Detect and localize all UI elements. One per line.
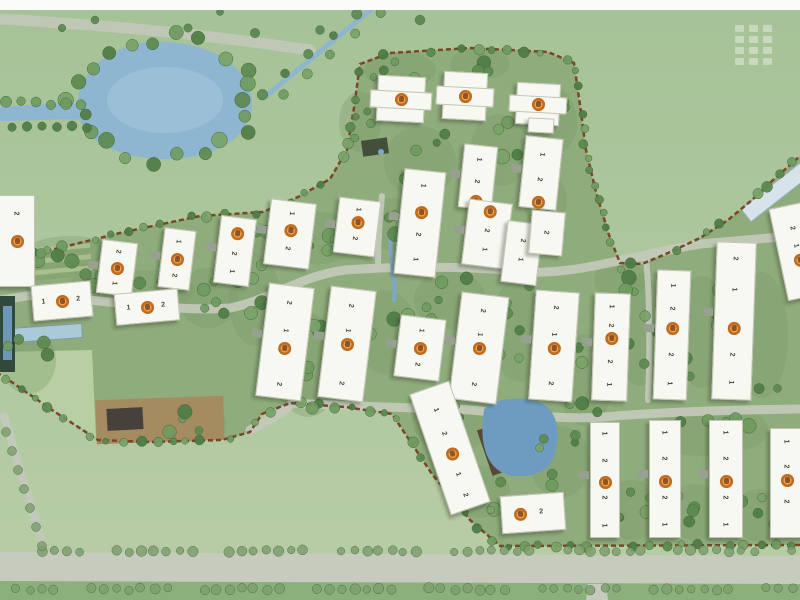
tree bbox=[211, 585, 221, 595]
south-road bbox=[0, 552, 800, 584]
tree bbox=[463, 547, 472, 556]
tree bbox=[370, 74, 377, 81]
unit-label: 2 bbox=[607, 323, 614, 327]
tree bbox=[487, 537, 496, 546]
parking-pad bbox=[251, 329, 262, 338]
unit-label: 1 bbox=[228, 269, 235, 274]
tree bbox=[451, 586, 460, 595]
tree bbox=[301, 189, 308, 196]
tree bbox=[351, 29, 360, 38]
tree bbox=[751, 548, 759, 556]
unit-label: 1 bbox=[721, 430, 728, 434]
tree bbox=[551, 542, 561, 552]
tree bbox=[537, 50, 543, 56]
tree bbox=[355, 68, 364, 77]
tree bbox=[288, 546, 295, 553]
tree bbox=[170, 147, 183, 160]
tree bbox=[125, 586, 133, 594]
tree bbox=[440, 129, 450, 139]
unit-label: 2 bbox=[414, 232, 421, 237]
tree bbox=[352, 113, 359, 120]
tree bbox=[789, 584, 798, 593]
tree bbox=[31, 97, 41, 107]
tree bbox=[164, 584, 172, 592]
tree bbox=[600, 209, 607, 216]
tree bbox=[788, 547, 796, 555]
tree bbox=[112, 546, 122, 556]
tree bbox=[570, 430, 580, 440]
tree bbox=[22, 122, 32, 132]
tree bbox=[579, 140, 588, 149]
tree bbox=[476, 546, 484, 554]
tree bbox=[640, 311, 651, 322]
unit-label: 1 bbox=[600, 432, 607, 436]
unit-label: 1 bbox=[288, 211, 295, 216]
tree bbox=[487, 506, 495, 514]
tree bbox=[787, 157, 796, 166]
unit-label: 1 bbox=[174, 239, 181, 244]
unit-label: 2 bbox=[536, 177, 543, 182]
tree bbox=[279, 90, 289, 100]
tree bbox=[225, 585, 235, 595]
tree bbox=[317, 181, 324, 188]
tree bbox=[324, 584, 334, 594]
unit-label: 2 bbox=[782, 500, 789, 504]
tree bbox=[472, 524, 482, 534]
tree bbox=[758, 541, 766, 549]
building: 21 bbox=[96, 239, 138, 297]
unit-label: 2 bbox=[788, 226, 796, 231]
tree bbox=[363, 586, 371, 594]
tree bbox=[435, 296, 443, 304]
tree bbox=[574, 586, 582, 594]
tree bbox=[639, 359, 649, 369]
tree bbox=[753, 188, 763, 198]
parking-pad bbox=[256, 225, 267, 234]
building-number-marker bbox=[140, 300, 154, 314]
tree bbox=[312, 584, 321, 593]
tree bbox=[62, 547, 71, 556]
building-number-marker bbox=[110, 261, 124, 275]
tree bbox=[547, 469, 557, 479]
unit-label: 1 bbox=[475, 157, 482, 162]
building-number-marker bbox=[727, 322, 740, 335]
tree bbox=[363, 546, 373, 556]
building-number-marker bbox=[472, 341, 486, 355]
tree bbox=[576, 356, 588, 368]
unit-label: 2 bbox=[283, 246, 290, 251]
unit-label: 1 bbox=[669, 284, 676, 288]
tree bbox=[381, 409, 388, 416]
watermark-glyph bbox=[735, 36, 744, 43]
tree bbox=[281, 69, 290, 78]
tree bbox=[367, 119, 376, 128]
tree bbox=[391, 58, 399, 66]
tree bbox=[67, 121, 77, 131]
tree bbox=[352, 9, 362, 19]
tree bbox=[273, 546, 284, 557]
tree bbox=[302, 69, 312, 79]
tree bbox=[263, 585, 273, 595]
tree bbox=[436, 584, 445, 593]
tree bbox=[162, 547, 171, 556]
tree bbox=[32, 395, 38, 401]
tree bbox=[387, 585, 396, 594]
building: 12 bbox=[333, 197, 382, 258]
parking-pad bbox=[511, 164, 522, 173]
parking-pad bbox=[313, 331, 324, 340]
tree bbox=[191, 31, 205, 45]
unit-label: 2 bbox=[552, 306, 559, 310]
tree bbox=[496, 477, 506, 487]
tree bbox=[329, 32, 337, 40]
tree bbox=[37, 336, 50, 349]
tree bbox=[500, 585, 509, 594]
unit-label: 2 bbox=[285, 300, 292, 305]
tree bbox=[1, 375, 9, 383]
west-water-garden-pool bbox=[3, 306, 12, 360]
unit-label: 2 bbox=[732, 256, 739, 260]
watermark-glyph bbox=[749, 47, 758, 54]
tree bbox=[306, 402, 319, 415]
tree bbox=[595, 195, 603, 203]
building: 212 bbox=[528, 290, 580, 403]
tree bbox=[673, 545, 682, 554]
unit-label: 2 bbox=[161, 301, 166, 308]
unit-label: 1 bbox=[666, 381, 673, 385]
tree bbox=[350, 584, 361, 595]
tree bbox=[329, 403, 339, 413]
tree bbox=[687, 505, 699, 517]
tree bbox=[250, 28, 259, 37]
unit-label: 1 bbox=[282, 328, 289, 333]
unit-label: 1 bbox=[432, 407, 440, 413]
unit-label: 2 bbox=[12, 212, 19, 216]
tree bbox=[103, 438, 109, 444]
watermark-glyph bbox=[749, 58, 758, 65]
tree bbox=[351, 546, 359, 554]
tree bbox=[399, 548, 407, 556]
tree bbox=[663, 542, 672, 551]
tree bbox=[416, 454, 424, 462]
tree bbox=[536, 444, 544, 452]
tree bbox=[188, 212, 196, 220]
tree bbox=[546, 479, 558, 491]
unit-label: 1 bbox=[344, 328, 351, 333]
tree bbox=[201, 212, 212, 223]
building-number-marker bbox=[350, 215, 364, 229]
tree bbox=[672, 246, 681, 255]
watermark-glyph bbox=[735, 25, 744, 32]
tree bbox=[427, 48, 436, 57]
building-number-marker bbox=[531, 97, 545, 111]
tree bbox=[235, 92, 250, 107]
building bbox=[442, 71, 488, 121]
unit-label: 2 bbox=[519, 238, 526, 243]
tree bbox=[626, 488, 635, 497]
tree bbox=[237, 546, 247, 556]
building-number-marker bbox=[414, 206, 428, 220]
tree bbox=[98, 132, 114, 148]
building: 1221 bbox=[591, 292, 631, 401]
parking-pad bbox=[579, 471, 589, 479]
tree bbox=[147, 157, 161, 171]
building: 2 bbox=[0, 195, 35, 287]
unit-label: 2 bbox=[230, 251, 237, 256]
building: 1221 bbox=[709, 420, 743, 538]
tree bbox=[71, 74, 86, 89]
unit-label: 2 bbox=[170, 273, 177, 278]
building-number-marker bbox=[781, 474, 794, 487]
tree bbox=[712, 545, 721, 554]
tree bbox=[27, 586, 35, 594]
tree bbox=[194, 435, 204, 445]
unit-label: 1 bbox=[41, 298, 46, 305]
tree bbox=[563, 56, 572, 65]
unit-label: 1 bbox=[538, 152, 545, 157]
top-margin bbox=[0, 0, 800, 10]
tree bbox=[257, 89, 268, 100]
tree bbox=[338, 585, 346, 593]
tree bbox=[662, 584, 673, 595]
tree bbox=[244, 306, 257, 319]
parking-pad bbox=[88, 260, 99, 269]
unit-label: 2 bbox=[76, 295, 81, 302]
tree bbox=[337, 547, 345, 555]
tree bbox=[80, 109, 91, 120]
tree bbox=[146, 38, 158, 50]
tree bbox=[574, 545, 584, 555]
tree bbox=[612, 548, 620, 556]
tree bbox=[774, 584, 783, 593]
tree bbox=[701, 585, 709, 593]
tree bbox=[249, 547, 257, 555]
building-number-marker bbox=[277, 341, 291, 355]
unit-label: 2 bbox=[479, 308, 486, 313]
tree bbox=[626, 548, 634, 556]
building-number-marker bbox=[170, 252, 184, 266]
building: 122 bbox=[770, 428, 800, 538]
tree bbox=[178, 404, 193, 419]
tree bbox=[86, 433, 94, 441]
unit-label: 1 bbox=[608, 304, 615, 308]
unit-label: 2 bbox=[440, 431, 448, 437]
tree bbox=[649, 585, 658, 594]
unit-label: 1 bbox=[354, 207, 361, 212]
unit-label: 1 bbox=[476, 332, 483, 337]
tree bbox=[42, 402, 52, 412]
tree bbox=[379, 66, 388, 75]
tree bbox=[99, 584, 108, 593]
tree bbox=[512, 149, 523, 160]
building: 1221 bbox=[649, 420, 681, 538]
tree bbox=[488, 46, 495, 53]
tree bbox=[776, 170, 785, 179]
tree bbox=[373, 546, 382, 555]
tree bbox=[737, 547, 744, 554]
tree bbox=[458, 45, 466, 53]
tree bbox=[373, 583, 384, 594]
building-number-marker bbox=[340, 337, 354, 351]
tree bbox=[169, 25, 183, 39]
tree bbox=[60, 98, 72, 110]
parking-pad bbox=[388, 211, 399, 220]
tree bbox=[754, 383, 764, 393]
tree bbox=[325, 50, 334, 59]
tree bbox=[125, 227, 134, 236]
tree bbox=[200, 586, 209, 595]
tree bbox=[685, 545, 696, 556]
tree bbox=[503, 45, 512, 54]
parking-pad bbox=[638, 470, 648, 478]
tree bbox=[156, 220, 164, 228]
unit-label: 2 bbox=[660, 457, 667, 461]
tree bbox=[564, 546, 572, 554]
unit-label: 1 bbox=[605, 383, 612, 387]
unit-label: 1 bbox=[660, 523, 667, 527]
tree bbox=[195, 427, 203, 435]
tree bbox=[408, 437, 419, 448]
tree bbox=[87, 583, 96, 592]
unit-label: 1 bbox=[480, 247, 487, 252]
tree bbox=[38, 122, 46, 130]
site-plan: 1212121212211212211212212122122121221221… bbox=[0, 0, 800, 600]
tree bbox=[239, 110, 251, 122]
building: 12 bbox=[31, 280, 94, 321]
tree bbox=[188, 546, 198, 556]
tree bbox=[87, 63, 100, 76]
unit-label: 2 bbox=[668, 307, 675, 311]
building-number-marker bbox=[283, 224, 297, 238]
unit-label: 2 bbox=[483, 228, 490, 233]
parking-pad bbox=[386, 339, 397, 348]
tree bbox=[699, 546, 708, 555]
tree bbox=[463, 583, 473, 593]
watermark-glyph bbox=[749, 36, 758, 43]
tree bbox=[494, 124, 504, 134]
tree bbox=[126, 39, 138, 51]
tree bbox=[8, 447, 17, 456]
tree bbox=[635, 545, 645, 555]
tree bbox=[46, 100, 55, 109]
tree bbox=[125, 548, 133, 556]
tree bbox=[338, 152, 349, 163]
tree bbox=[606, 238, 614, 246]
tree bbox=[266, 408, 276, 418]
building-number-marker bbox=[482, 205, 496, 219]
tree bbox=[14, 334, 24, 344]
tree bbox=[753, 508, 763, 518]
watermark-glyph bbox=[749, 25, 758, 32]
tree bbox=[585, 155, 592, 162]
tree bbox=[298, 545, 308, 555]
unit-label: 1 bbox=[110, 280, 117, 285]
parking-pad bbox=[698, 470, 708, 478]
unit-label: 1 bbox=[727, 381, 734, 385]
tree bbox=[758, 493, 767, 502]
watermark-glyph bbox=[763, 25, 772, 32]
unit-label: 2 bbox=[660, 495, 667, 499]
building-number-marker bbox=[666, 322, 679, 335]
tree bbox=[248, 583, 258, 593]
unit-label: 1 bbox=[721, 523, 728, 527]
tree bbox=[351, 134, 359, 142]
parking-pad bbox=[325, 219, 336, 228]
tree bbox=[17, 97, 26, 106]
tree bbox=[539, 585, 547, 593]
tree bbox=[393, 416, 399, 422]
unit-label: 2 bbox=[728, 353, 735, 357]
tree bbox=[365, 407, 375, 417]
tree bbox=[51, 249, 64, 262]
building: 12 bbox=[263, 198, 317, 269]
parking-pad bbox=[582, 338, 592, 346]
tree bbox=[424, 583, 434, 593]
tree bbox=[238, 583, 247, 592]
unit-label: 2 bbox=[275, 381, 282, 386]
tree bbox=[14, 466, 23, 475]
unit-label: 1 bbox=[730, 287, 737, 291]
unit-label: 2 bbox=[539, 508, 543, 515]
tree bbox=[197, 283, 210, 296]
watermark-glyph bbox=[763, 58, 772, 65]
tree bbox=[572, 67, 579, 74]
tree bbox=[241, 125, 255, 139]
tree bbox=[524, 545, 534, 555]
tree bbox=[534, 541, 542, 549]
unit-label: 2 bbox=[600, 496, 607, 500]
unit-label: 1 bbox=[411, 257, 418, 262]
building-number-marker bbox=[659, 475, 672, 488]
tree bbox=[602, 224, 609, 231]
tree bbox=[600, 546, 610, 556]
tree bbox=[316, 26, 325, 35]
tree bbox=[724, 585, 733, 594]
tree bbox=[601, 584, 610, 593]
tree bbox=[107, 231, 114, 238]
tree bbox=[539, 434, 548, 443]
tree bbox=[564, 584, 572, 592]
building: 2121 bbox=[711, 241, 756, 400]
watermark bbox=[735, 25, 772, 65]
building: 12 bbox=[393, 314, 446, 381]
building-number-marker bbox=[792, 252, 800, 267]
tree bbox=[585, 546, 595, 556]
tree bbox=[581, 125, 589, 133]
unit-label: 2 bbox=[547, 381, 554, 385]
tree bbox=[240, 76, 255, 91]
tree bbox=[18, 386, 25, 393]
unit-label: 1 bbox=[600, 523, 607, 527]
tree bbox=[76, 100, 86, 110]
tree bbox=[625, 258, 636, 269]
building: 1221 bbox=[590, 422, 620, 538]
tree bbox=[585, 585, 595, 595]
building-number-marker bbox=[514, 507, 528, 521]
tree bbox=[199, 147, 211, 159]
tree bbox=[322, 245, 333, 256]
tree bbox=[474, 44, 485, 55]
tree bbox=[253, 211, 261, 219]
building-number-marker bbox=[55, 294, 69, 308]
unit-label: 1 bbox=[516, 257, 523, 262]
unit-label: 2 bbox=[470, 382, 477, 387]
building: 2 bbox=[528, 210, 566, 257]
tree bbox=[345, 122, 355, 132]
tree bbox=[58, 24, 66, 32]
tree bbox=[683, 516, 694, 527]
unit-label: 2 bbox=[782, 464, 789, 468]
